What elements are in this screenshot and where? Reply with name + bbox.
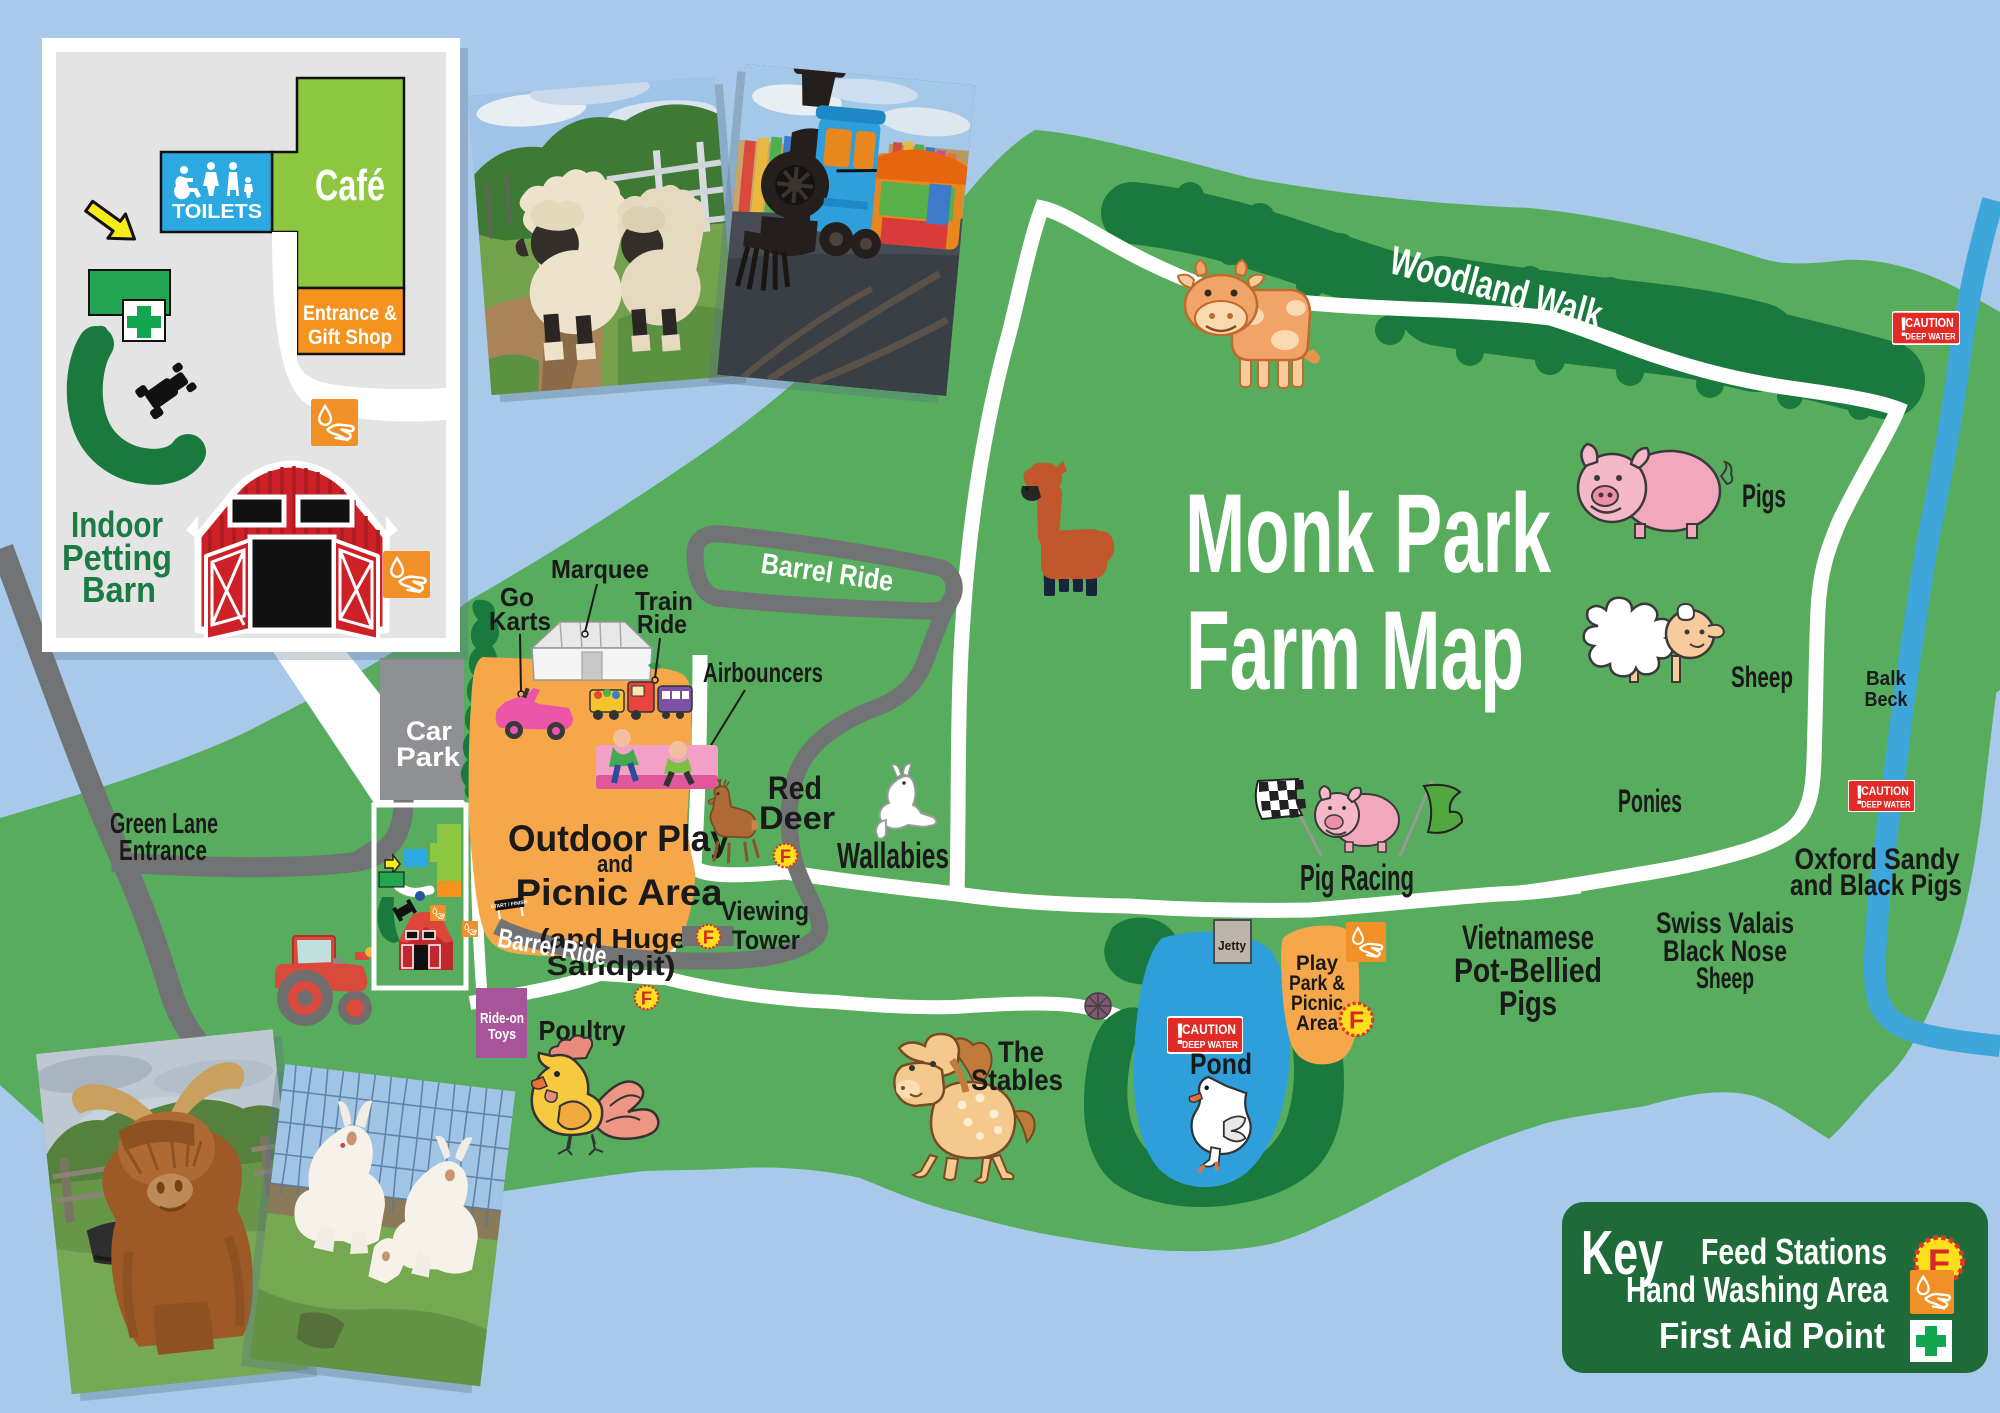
svg-text:Ponies: Ponies bbox=[1618, 783, 1682, 819]
svg-text:Pigs: Pigs bbox=[1499, 985, 1557, 1023]
svg-text:Sheep: Sheep bbox=[1696, 962, 1754, 995]
svg-text:Entrance &: Entrance & bbox=[303, 302, 397, 325]
svg-text:Deer: Deer bbox=[759, 800, 835, 836]
svg-text:Toys: Toys bbox=[488, 1026, 516, 1043]
svg-text:Sheep: Sheep bbox=[1731, 661, 1793, 694]
svg-text:Gift Shop: Gift Shop bbox=[308, 326, 392, 349]
svg-text:Feed Stations: Feed Stations bbox=[1701, 1231, 1887, 1272]
svg-text:Stables: Stables bbox=[971, 1064, 1063, 1097]
svg-text:Hand Washing Area: Hand Washing Area bbox=[1626, 1269, 1889, 1310]
svg-text:Airbouncers: Airbouncers bbox=[703, 657, 823, 688]
svg-text:Beck: Beck bbox=[1865, 689, 1909, 711]
svg-text:Picnic Area: Picnic Area bbox=[516, 872, 723, 913]
svg-text:Entrance: Entrance bbox=[119, 835, 207, 867]
svg-text:Wallabies: Wallabies bbox=[837, 835, 949, 876]
svg-text:Park: Park bbox=[396, 742, 461, 772]
svg-text:Karts: Karts bbox=[489, 606, 551, 636]
svg-text:Ride-on: Ride-on bbox=[480, 1010, 524, 1027]
svg-text:Pigs: Pigs bbox=[1742, 478, 1786, 514]
svg-text:Café: Café bbox=[315, 161, 385, 210]
svg-text:Barn: Barn bbox=[82, 569, 156, 610]
svg-text:Ride: Ride bbox=[637, 609, 687, 639]
svg-text:Pond: Pond bbox=[1190, 1048, 1252, 1081]
svg-text:Monk Park: Monk Park bbox=[1185, 471, 1551, 596]
svg-text:Area: Area bbox=[1296, 1012, 1338, 1035]
svg-text:First Aid Point: First Aid Point bbox=[1659, 1315, 1885, 1356]
svg-text:and Black Pigs: and Black Pigs bbox=[1790, 869, 1962, 902]
svg-text:Pig Racing: Pig Racing bbox=[1300, 857, 1414, 898]
svg-text:Farm Map: Farm Map bbox=[1186, 588, 1524, 713]
svg-text:Tower: Tower bbox=[732, 925, 800, 955]
svg-text:Balk: Balk bbox=[1866, 668, 1907, 690]
svg-text:Viewing: Viewing bbox=[721, 896, 809, 926]
svg-text:Jetty: Jetty bbox=[1218, 938, 1247, 953]
svg-text:Marquee: Marquee bbox=[551, 554, 649, 584]
svg-text:TOILETS: TOILETS bbox=[172, 201, 262, 223]
